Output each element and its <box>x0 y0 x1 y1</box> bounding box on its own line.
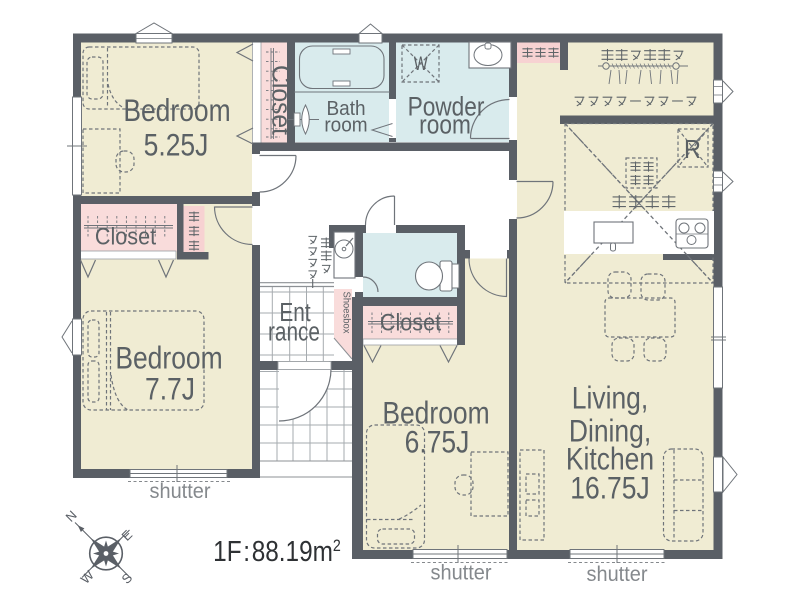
svg-text:shutter: shutter <box>587 563 648 587</box>
svg-text:rance: rance <box>268 317 320 346</box>
svg-text:Bedroom: Bedroom <box>115 341 222 376</box>
svg-text:Closet: Closet <box>380 308 442 335</box>
svg-text:Bedroom: Bedroom <box>123 94 230 129</box>
svg-text:Closet: Closet <box>266 65 295 135</box>
svg-text:shutter: shutter <box>150 480 211 504</box>
svg-text:room: room <box>419 110 471 140</box>
svg-text:Closet: Closet <box>95 222 157 249</box>
svg-text:shutter: shutter <box>431 561 492 585</box>
svg-text:5.25J: 5.25J <box>144 128 209 163</box>
svg-text:W: W <box>78 567 98 587</box>
svg-text:S: S <box>119 570 136 587</box>
svg-text:N: N <box>63 508 80 525</box>
svg-text:Shoesbox: Shoesbox <box>340 292 352 334</box>
svg-text:6.75J: 6.75J <box>405 425 470 460</box>
svg-text:R: R <box>684 136 701 164</box>
svg-text:1F:88.19m2: 1F:88.19m2 <box>213 535 341 567</box>
svg-text:E: E <box>119 527 136 544</box>
svg-text:16.75J: 16.75J <box>570 471 649 506</box>
svg-text:Living,: Living, <box>572 381 648 416</box>
svg-text:room: room <box>324 114 367 137</box>
svg-text:7.7J: 7.7J <box>145 372 195 407</box>
svg-text:W: W <box>414 53 428 74</box>
